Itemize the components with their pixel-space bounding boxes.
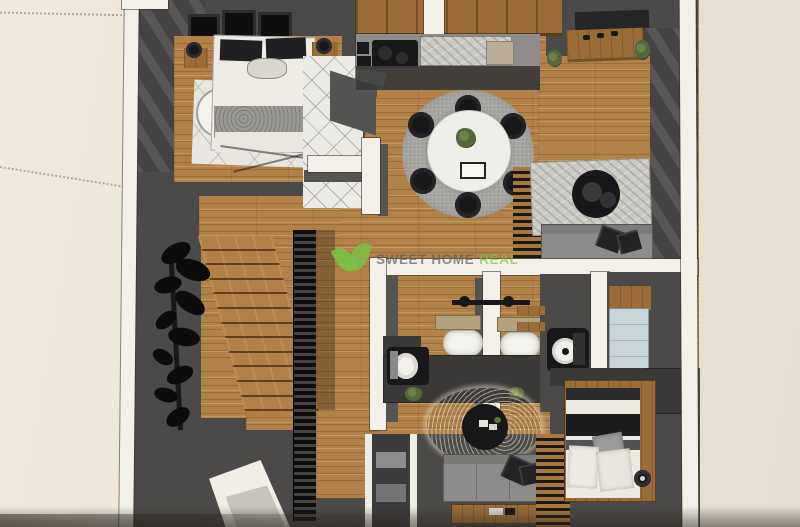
hall-wood-patch	[538, 56, 650, 170]
cutting-board	[486, 41, 514, 65]
toilet-cistern	[390, 351, 398, 379]
watermark-brand: SWEET HOME	[376, 252, 474, 267]
bathroom-plant	[405, 387, 423, 401]
dotted-guide-line	[0, 12, 134, 17]
bed-pillow-white	[567, 445, 599, 489]
console-decor	[611, 31, 618, 36]
wc-shelf	[517, 322, 545, 331]
washbasin	[443, 330, 483, 356]
stair-step	[225, 338, 303, 353]
floorplan-photo: SWEET HOMEREAL	[0, 0, 800, 527]
kitchen-counter-front	[356, 66, 540, 90]
faucet-knob	[503, 296, 514, 307]
floral-wall-decal	[138, 225, 220, 440]
potted-plant	[635, 40, 650, 60]
cooktop-burner	[378, 46, 392, 60]
toilet-cistern	[573, 333, 585, 365]
console-decor	[583, 35, 590, 40]
lamp-highlight	[640, 476, 645, 481]
watermark-brand-accent: REAL	[479, 252, 518, 267]
bath-mat	[435, 315, 481, 330]
watermark-text: SWEET HOMEREAL	[376, 252, 518, 267]
outer-wall-right	[680, 0, 699, 527]
coffee-table-inner	[582, 182, 602, 202]
stair-side-shadow	[315, 230, 335, 410]
wc-shelf	[517, 306, 545, 315]
watermark: SWEET HOMEREAL	[336, 240, 506, 282]
outer-wall-top-corner	[122, 0, 168, 9]
sofa-seam	[476, 464, 477, 500]
kitchen-sink	[357, 42, 369, 54]
dining-table	[427, 110, 511, 192]
bed-tray	[247, 58, 287, 79]
table-plant-leaf	[494, 417, 501, 423]
bed-foot-blanket	[566, 388, 640, 400]
stair-step	[221, 324, 299, 339]
dining-chair	[455, 192, 481, 218]
shelving-box	[376, 452, 406, 468]
bed-foot-sheet	[215, 132, 313, 152]
stair-step	[218, 309, 296, 324]
table-plant	[456, 128, 476, 148]
table-decor	[479, 420, 488, 427]
console-table	[567, 28, 644, 60]
stair-railing	[293, 230, 316, 522]
bedside-lamp	[186, 42, 202, 58]
cooktop-burner	[396, 52, 408, 64]
bedside-lamp	[316, 38, 332, 54]
coffee-table-inner	[600, 192, 616, 208]
toilet-seat-center	[562, 348, 569, 355]
table-tray	[460, 162, 486, 179]
console-decor	[597, 33, 604, 38]
stair-step	[210, 280, 288, 295]
interior-wall	[362, 138, 380, 214]
shelving-box	[376, 484, 406, 502]
faucet-knob	[459, 296, 470, 307]
kitchen-cabinets	[356, 0, 562, 36]
table-decor	[489, 424, 497, 430]
green-leaf-heart-icon	[346, 240, 372, 274]
bed-stripe-dark	[566, 414, 640, 436]
kitchen-cabinet-gap	[424, 0, 444, 36]
shower-floor-blue	[609, 308, 649, 372]
bed-pillow	[266, 37, 307, 59]
photo-bottom-shadow-left	[0, 514, 430, 527]
dotted-guide-line	[0, 166, 140, 190]
bed-pillow-white	[596, 448, 635, 492]
kitchen-sink	[357, 56, 371, 66]
stair-step	[214, 294, 292, 309]
potted-plant	[547, 50, 562, 67]
shower-threshold	[609, 286, 651, 310]
round-coffee-table	[462, 404, 508, 450]
